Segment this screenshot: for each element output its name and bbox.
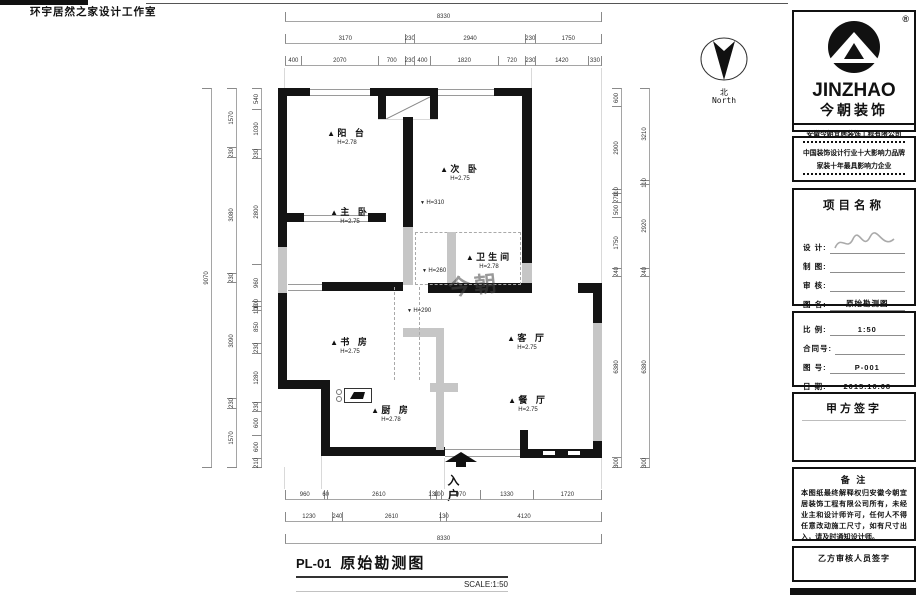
wall-left-mid: [278, 213, 287, 247]
drawing-sheet: 环宇居然之家设计工作室: [0, 0, 920, 600]
central-wall: [403, 117, 413, 227]
field-scale: 比 例:1:50: [803, 317, 905, 336]
field-drawing-name: 图 名:原始勘测图: [803, 292, 905, 311]
logo-box: ® JINZHAO 今朝装饰 安徽今朝宜居装饰工程有限公司: [792, 10, 916, 132]
room-label-bedroom2: 次 卧H=2.75: [440, 162, 480, 182]
extension-line: [284, 467, 285, 489]
sheet-bottom-bar: [790, 588, 916, 595]
logo-text-cn: 今朝装饰: [794, 102, 914, 119]
dim-left-overall: 9070: [202, 88, 212, 468]
extension-line: [321, 456, 322, 489]
dim-right-mid: 321011029202406380300: [640, 88, 650, 468]
shaft-right-wall: [430, 88, 438, 120]
hall-dashed-wall: [394, 287, 420, 380]
dim-top-detail: 400207070023040018207202301420330: [285, 56, 602, 66]
shaft-top-wall: [378, 88, 438, 96]
party-a-sign-title: 甲方签字: [794, 400, 914, 416]
room-label-kitchen: 厨 房H=2.78: [371, 403, 411, 423]
sheet-title: 原始勘测图: [340, 552, 425, 573]
field-date: 日 期:2015.10.08: [803, 374, 905, 393]
balcony-divider: [368, 213, 386, 222]
dim-right-detail: 600290011027050017502406380300: [612, 88, 622, 468]
central-wall-gray: [403, 227, 413, 285]
room-label-study: 书 房H=2.75: [330, 335, 370, 355]
north-arrow: 北 North: [698, 36, 750, 106]
dim-bottom-mid: 123024026101304120: [285, 512, 602, 522]
field-drafter: 制 图:: [803, 254, 905, 273]
beam-note: H=310: [420, 200, 444, 206]
scale-box: 比 例:1:50 合同号: 图 号:P-001 日 期:2015.10.08: [792, 311, 916, 387]
knob-icon: [336, 389, 342, 395]
award-line-2: 家装十年最具影响力企业: [794, 160, 914, 170]
kitchen-left-wall: [321, 383, 330, 456]
dim-bottom-detail: 96060261013010097013301720: [285, 490, 602, 500]
party-a-sign-box: 甲方签字: [792, 392, 916, 462]
notes-text: 本图纸最终解释权归安徽今朝宜居装饰工程有限公司所有，未经业主和设计师许可，任何人…: [794, 486, 914, 543]
beam-note: H=290: [407, 308, 431, 314]
jinzhao-logo-icon: [827, 20, 881, 74]
project-box: 项目名称 设 计: 制 图: 审 核: 图 名:原始勘测图: [792, 188, 916, 306]
kitchen-window: [430, 383, 458, 392]
wall-right-upper: [522, 88, 532, 263]
window: [593, 323, 602, 441]
designer-signature: [832, 230, 898, 256]
party-b-sign-title: 乙方审核人员签字: [794, 553, 914, 564]
notes-box: 备 注 本图纸最终解释权归安徽今朝宜居装饰工程有限公司所有，未经业主和设计师许可…: [792, 467, 916, 541]
extension-line: [601, 68, 602, 283]
shaft-left-wall: [378, 88, 386, 120]
extension-line: [601, 458, 602, 489]
field-contract-no: 合同号:: [803, 336, 905, 355]
door-opening: [288, 284, 322, 291]
sheet-number: PL-01: [296, 556, 331, 571]
room-label-dining: 餐 厅H=2.75: [508, 393, 548, 413]
sheet-title-block: PL-01 原始勘测图 SCALE:1:50: [296, 552, 508, 592]
watermark: 今朝: [446, 265, 501, 302]
floor-plan: 阳 台H=2.78 次 卧H=2.75 主 卧H=2.75 卫生间H=2.78 …: [0, 0, 790, 600]
room-label-balcony: 阳 台H=2.78: [327, 126, 367, 146]
bay-window-notch: [568, 451, 580, 455]
project-title: 项目名称: [794, 197, 914, 213]
window: [438, 89, 494, 96]
knob-icon: [336, 396, 342, 402]
sheet-scale: SCALE:1:50: [296, 580, 508, 592]
room-label-living: 客 厅H=2.75: [507, 331, 547, 351]
extension-line: [531, 68, 532, 88]
bay-bottom-wall: [520, 449, 602, 458]
dotted-rule: [803, 173, 905, 176]
party-b-sign-box: 乙方审核人员签字: [792, 546, 916, 582]
dim-bottom-overall: 8330: [285, 534, 602, 544]
dim-top-overall: 8330: [285, 12, 602, 22]
logo-text-en: JINZHAO: [794, 81, 914, 100]
award-line-1: 中国装饰设计行业十大影响力品牌: [794, 147, 914, 157]
kitchen-bottom-wall: [321, 447, 445, 456]
awards-box: 中国装饰设计行业十大影响力品牌 家装十年最具影响力企业: [792, 136, 916, 182]
field-checker: 审 核:: [803, 273, 905, 292]
study-divider: [322, 282, 403, 291]
dotted-rule: [803, 141, 905, 144]
registered-mark: ®: [902, 14, 909, 24]
wall-left-lower: [278, 293, 287, 388]
wall-left-upper: [278, 88, 287, 213]
stove-icon: [344, 388, 372, 403]
window: [522, 263, 532, 285]
notes-title: 备 注: [794, 473, 914, 486]
divider: [802, 420, 906, 421]
bay-window-notch: [543, 451, 555, 455]
dim-top-mid: 317023029402301750: [285, 34, 602, 44]
dim-left-detail: 5401030230280096010010085023012802306006…: [252, 88, 262, 468]
window: [278, 247, 287, 293]
room-label-master: 主 卧H=2.75: [330, 205, 370, 225]
extension-line: [284, 68, 285, 88]
beam-note: H=260: [422, 268, 446, 274]
field-drawing-no: 图 号:P-001: [803, 355, 905, 374]
entry-arrow-icon: [445, 452, 477, 467]
compass-icon: [698, 36, 750, 84]
hall-wall: [436, 335, 444, 450]
window: [310, 89, 370, 96]
dim-left-mid: 1570230308023030902301570: [227, 88, 237, 468]
wall-right-living: [593, 283, 602, 323]
